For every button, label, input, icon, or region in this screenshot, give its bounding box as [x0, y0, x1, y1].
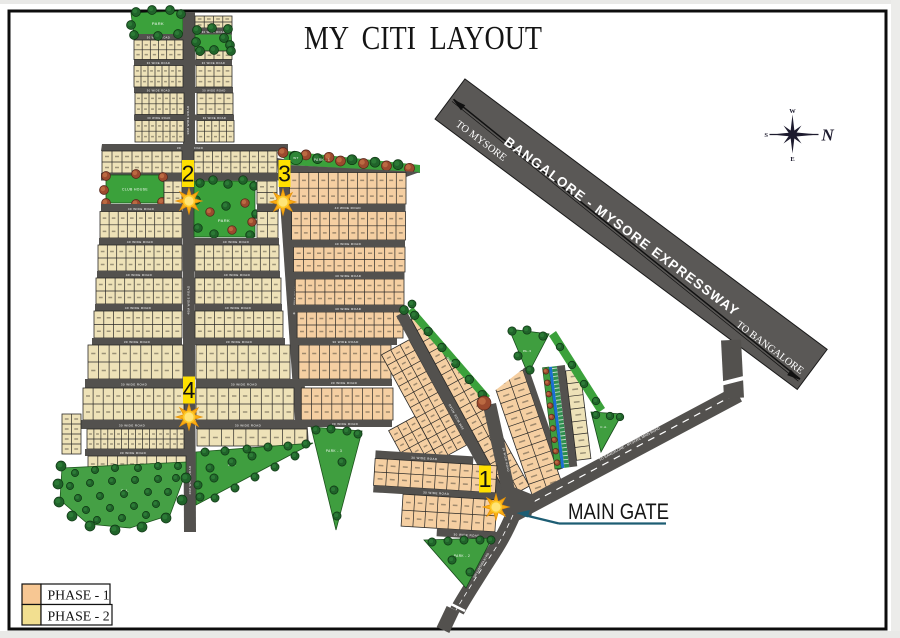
svg-text:1: 1 [479, 466, 492, 492]
svg-text:30 WIDE ROAD: 30 WIDE ROAD [202, 88, 225, 92]
svg-text:E: E [790, 156, 794, 163]
svg-text:30 WIDE ROAD: 30 WIDE ROAD [203, 116, 226, 120]
svg-text:40 WIDE ROAD: 40 WIDE ROAD [335, 242, 362, 246]
svg-text:30 WIDE ROAD: 30 WIDE ROAD [119, 424, 146, 428]
svg-text:C.A.: C.A. [600, 425, 607, 429]
svg-text:PARK - 2: PARK - 2 [454, 554, 470, 558]
svg-text:30 WIDE ROAD: 30 WIDE ROAD [332, 340, 359, 344]
svg-text:30 WIDE ROAD: 30 WIDE ROAD [120, 451, 147, 455]
svg-text:30 WIDE ROAD: 30 WIDE ROAD [121, 383, 148, 387]
svg-text:30 WIDE ROAD: 30 WIDE ROAD [235, 424, 262, 428]
svg-text:PARK - 3: PARK - 3 [326, 449, 342, 453]
svg-text:WT: WT [293, 156, 298, 160]
svg-text:40 WIDE ROAD: 40 WIDE ROAD [127, 240, 154, 244]
svg-text:30 WIDE ROAD: 30 WIDE ROAD [147, 116, 170, 120]
svg-text:4: 4 [183, 377, 196, 403]
svg-text:PHASE - 2: PHASE - 2 [48, 609, 110, 624]
svg-text:30 WIDE ROAD: 30 WIDE ROAD [147, 88, 170, 92]
svg-text:PARK: PARK [152, 21, 164, 26]
svg-text:40 WIDE ROAD: 40 WIDE ROAD [225, 306, 252, 310]
svg-text:40 WIDE ROAD: 40 WIDE ROAD [335, 274, 362, 278]
svg-text:40 WIDE ROAD: 40 WIDE ROAD [128, 207, 155, 211]
svg-text:3: 3 [278, 161, 291, 187]
svg-text:40 WIDE ROAD: 40 WIDE ROAD [223, 240, 250, 244]
svg-text:CLUB HOUSE: CLUB HOUSE [122, 188, 148, 192]
svg-text:30 WIDE ROAD: 30 WIDE ROAD [332, 422, 359, 426]
svg-text:W: W [789, 108, 796, 115]
svg-text:40 WIDE ROAD: 40 WIDE ROAD [126, 273, 153, 277]
svg-text:30 WIDE ROAD: 30 WIDE ROAD [202, 61, 225, 65]
svg-text:2: 2 [182, 161, 195, 187]
svg-text:MAIN GATE: MAIN GATE [568, 499, 669, 524]
svg-text:30 WIDE ROAD: 30 WIDE ROAD [331, 381, 358, 385]
svg-text:40 WIDE ROAD: 40 WIDE ROAD [335, 206, 362, 210]
svg-text:PA - 3: PA - 3 [523, 349, 531, 353]
svg-text:N: N [821, 126, 835, 145]
svg-text:30M WIDE ROAD: 30M WIDE ROAD [186, 105, 190, 135]
svg-text:PARK: PARK [218, 218, 230, 223]
svg-text:40 WIDE ROAD: 40 WIDE ROAD [335, 307, 362, 311]
svg-text:PARK - 1: PARK - 1 [314, 158, 330, 162]
svg-text:30 WIDE ROAD: 30 WIDE ROAD [231, 383, 258, 387]
svg-text:MY CITI LAYOUT: MY CITI LAYOUT [304, 20, 542, 57]
svg-text:30 WIDE ROAD: 30 WIDE ROAD [124, 340, 151, 344]
svg-text:30 WIDE ROAD: 30 WIDE ROAD [226, 340, 253, 344]
svg-text:40 WIDE ROAD: 40 WIDE ROAD [125, 306, 152, 310]
svg-text:S: S [764, 132, 768, 139]
svg-text:PHASE - 1: PHASE - 1 [48, 588, 110, 603]
svg-text:40 WIDE ROAD: 40 WIDE ROAD [224, 273, 251, 277]
svg-text:40M WIDE ROAD: 40M WIDE ROAD [187, 285, 191, 315]
svg-text:30 WIDE ROAD: 30 WIDE ROAD [147, 61, 170, 65]
